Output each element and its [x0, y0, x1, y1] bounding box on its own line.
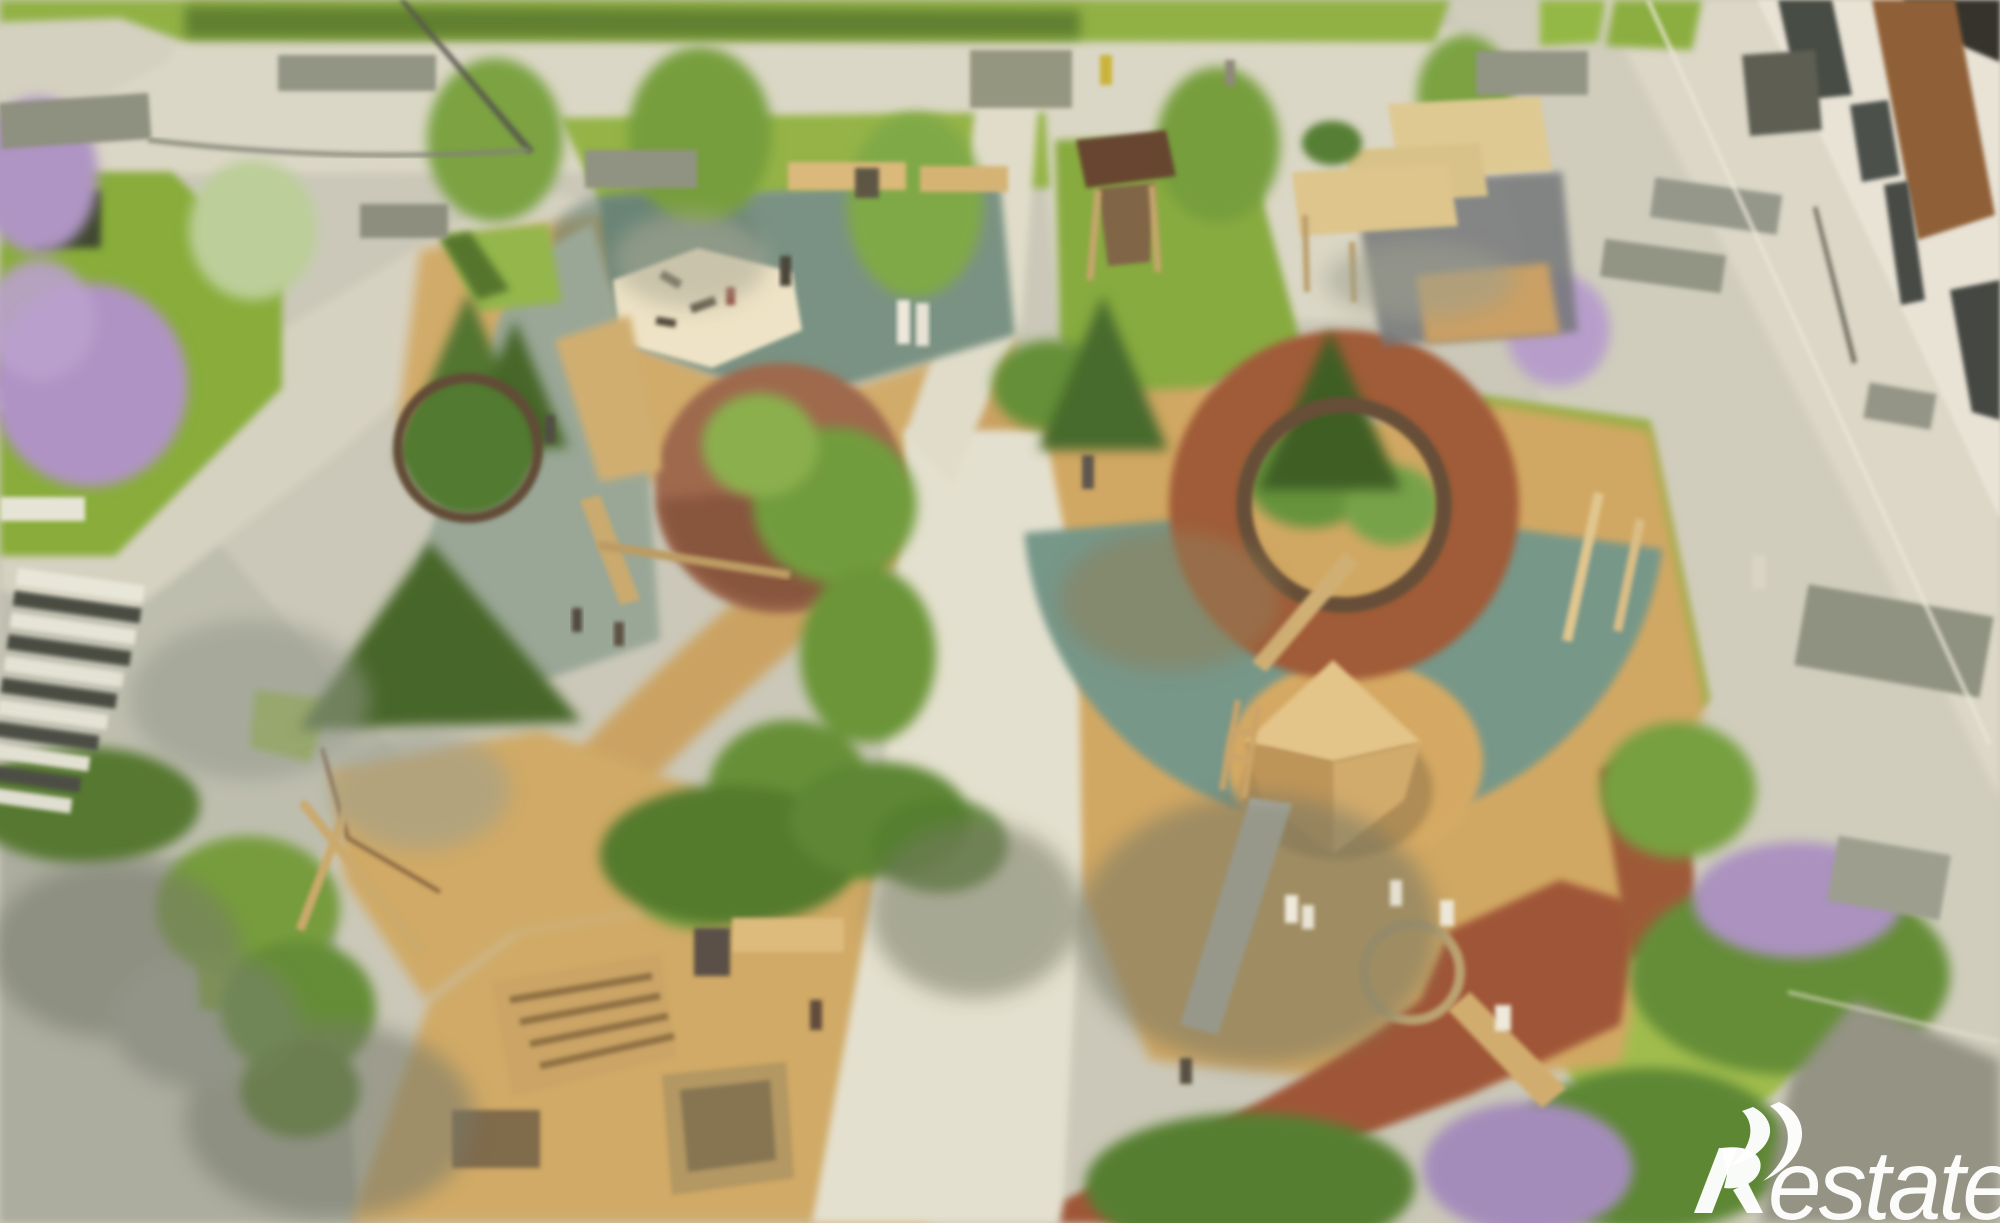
- svg-text:estate: estate: [1768, 1130, 2000, 1223]
